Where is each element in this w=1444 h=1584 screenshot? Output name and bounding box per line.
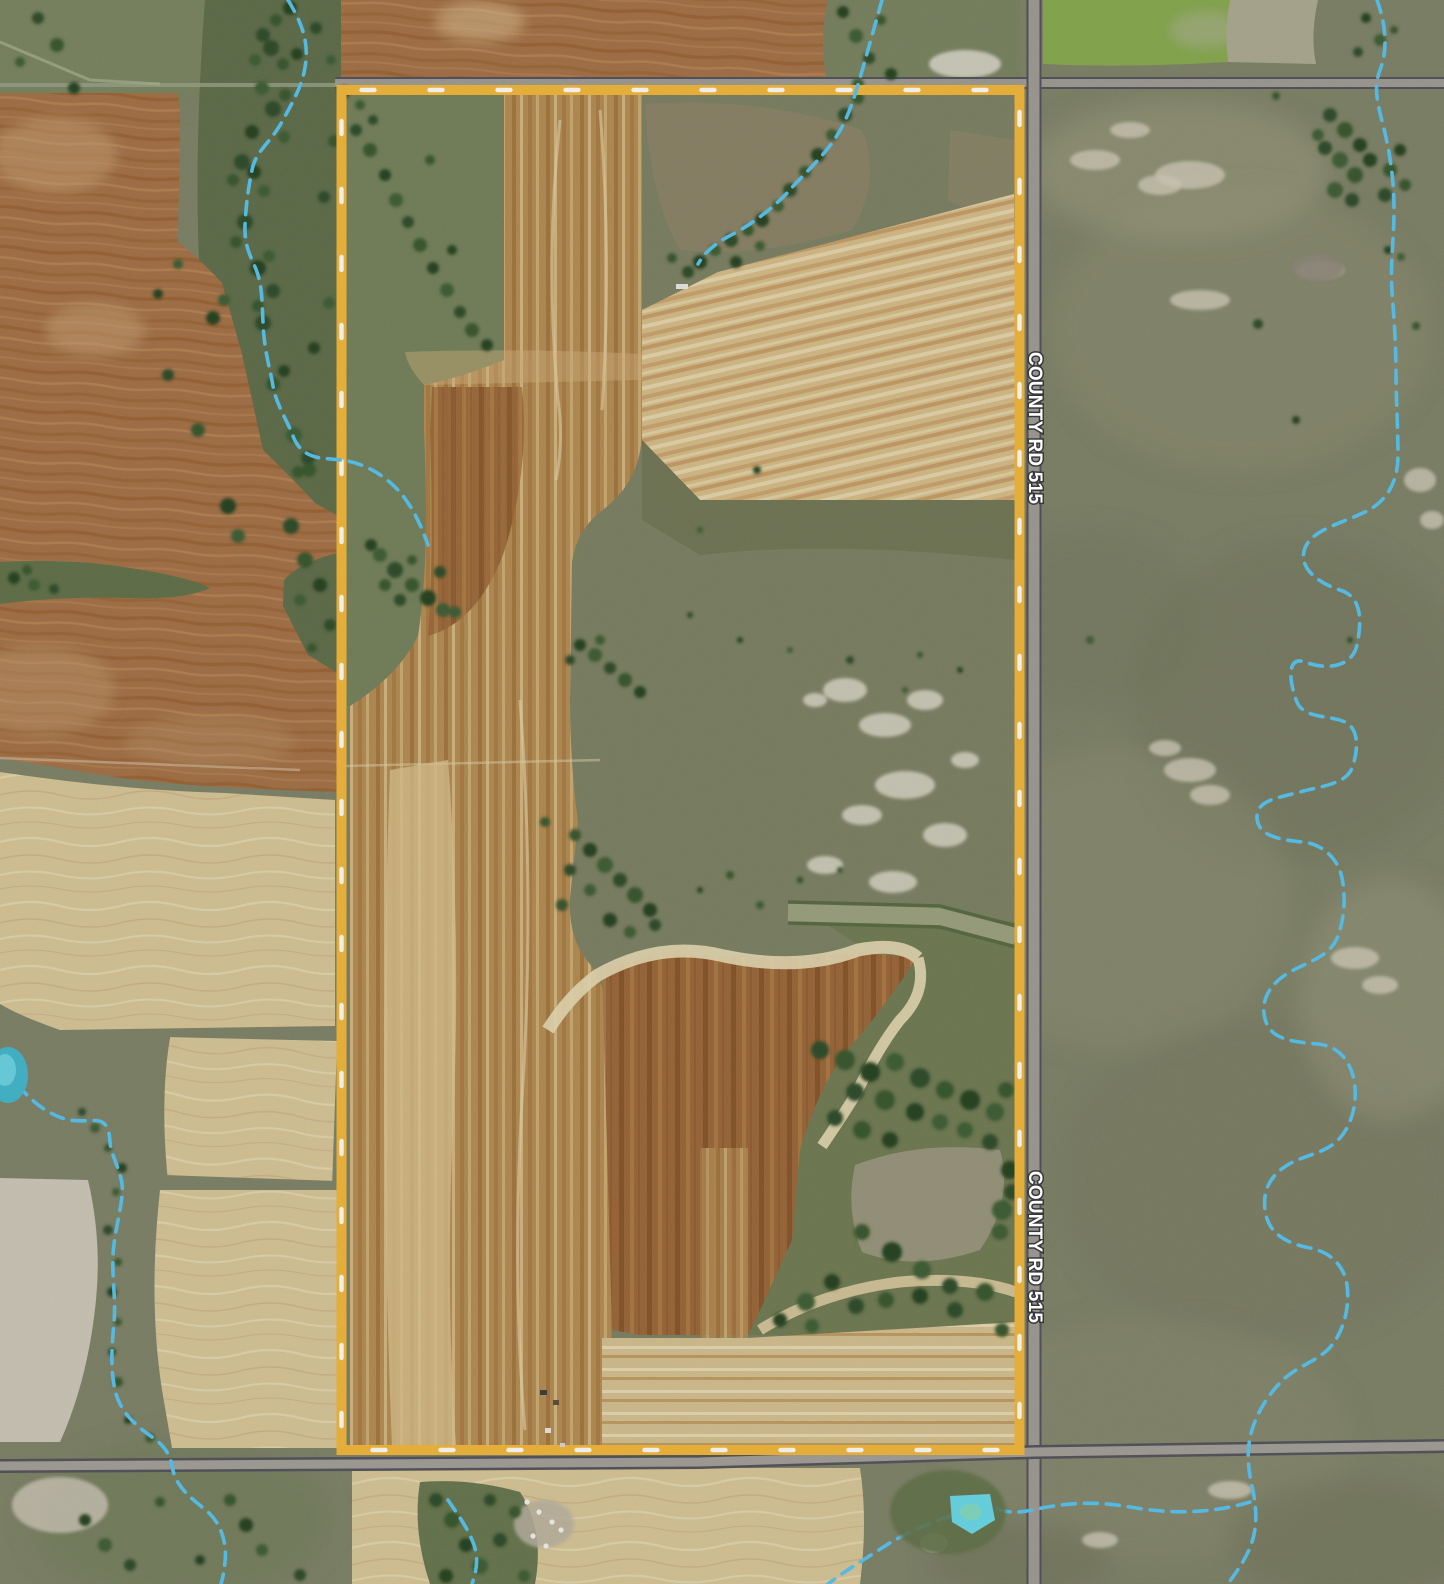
svg-text:COUNTY RD 515: COUNTY RD 515 (1024, 352, 1045, 504)
svg-text:COUNTY RD 515: COUNTY RD 515 (1024, 1171, 1045, 1323)
